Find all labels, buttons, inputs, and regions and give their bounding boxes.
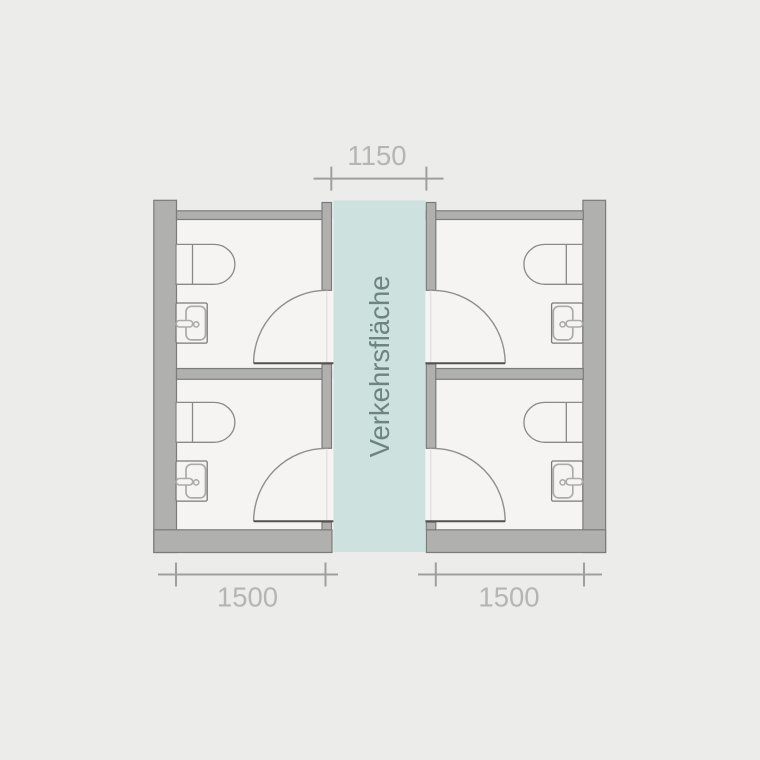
svg-text:1150: 1150 bbox=[347, 140, 406, 171]
svg-text:1500: 1500 bbox=[478, 581, 539, 612]
svg-text:1500: 1500 bbox=[217, 581, 278, 612]
svg-text:Verkehrsfläche: Verkehrsfläche bbox=[364, 275, 395, 457]
